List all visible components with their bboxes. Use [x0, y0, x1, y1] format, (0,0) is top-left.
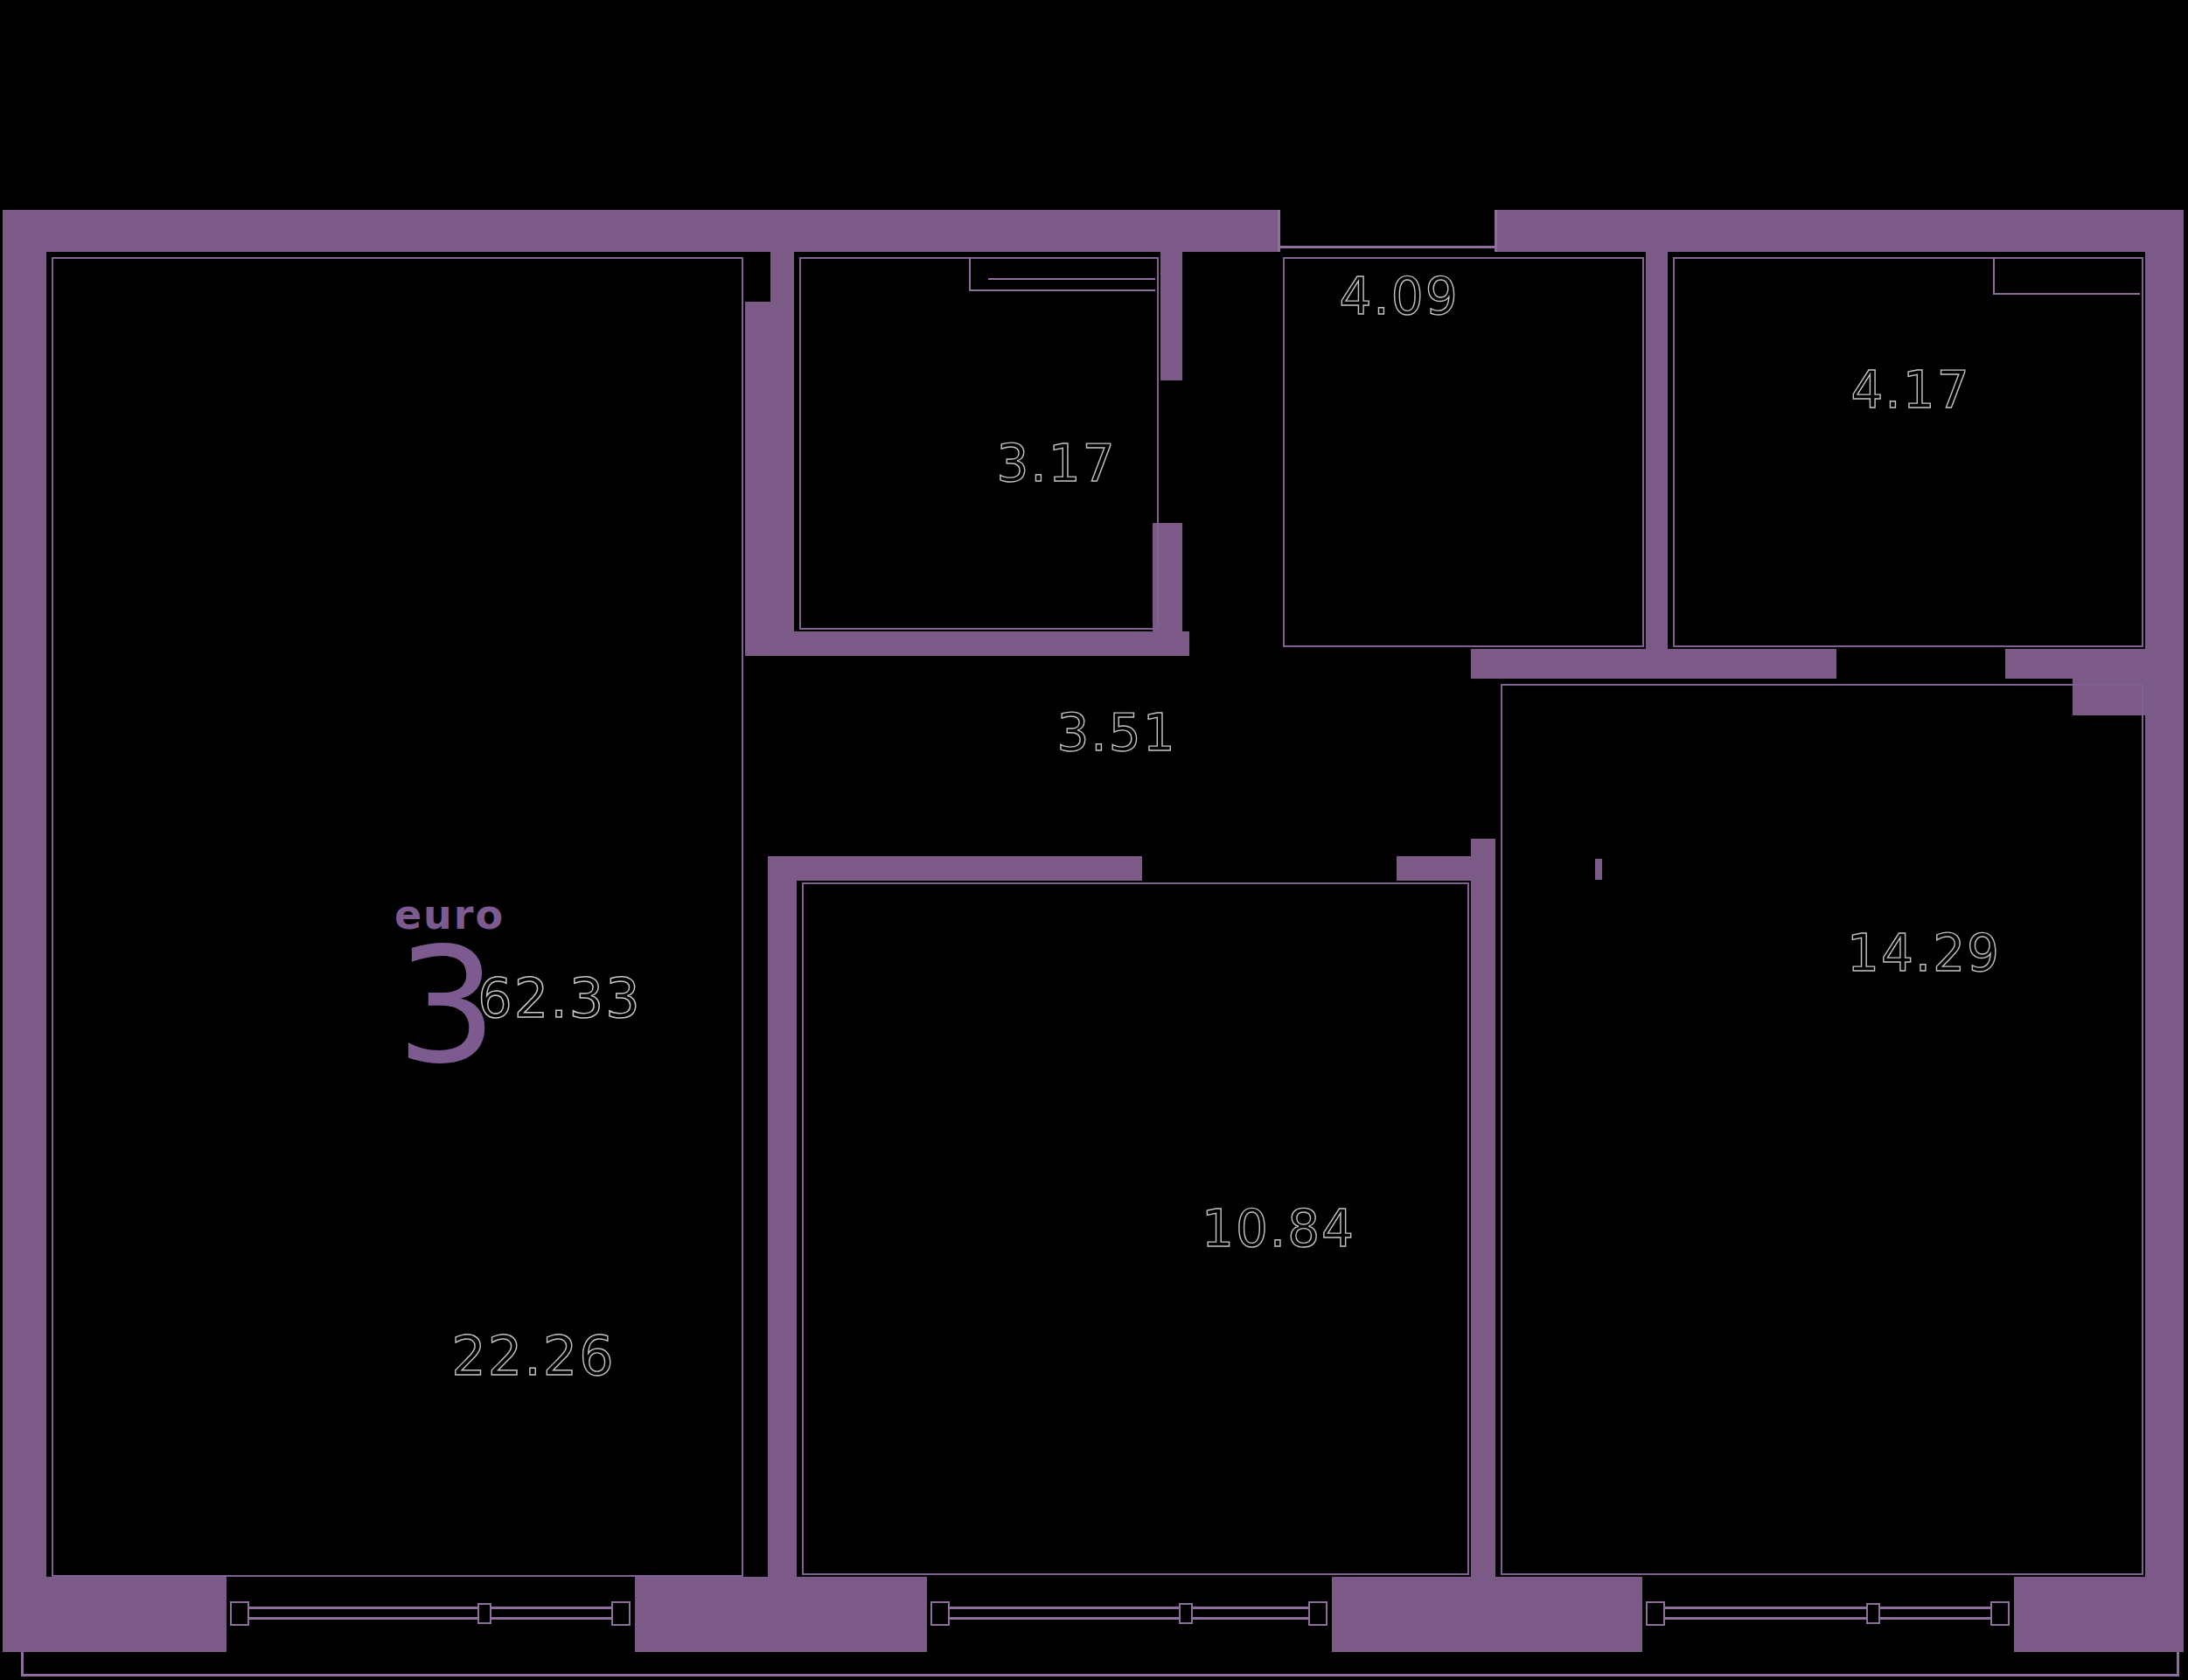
room-label-entry-hall: 4.09	[1339, 267, 1459, 326]
room-label-bedroom: 10.84	[1202, 1199, 1355, 1258]
wall-above-bedroom2-left	[1471, 649, 1836, 679]
wall-bedroom-divider	[1471, 839, 1495, 1577]
window-living-cap-left	[230, 1601, 249, 1626]
wall-hall-bathroom2-divider	[1646, 252, 1668, 649]
room-label-living: 22.26	[451, 1324, 616, 1388]
wall-top-left-segment	[3, 210, 1278, 252]
entrance-jamb-left	[1278, 210, 1280, 252]
balcony-line-left	[21, 1652, 24, 1677]
wall-living-bedroom-divider	[768, 856, 797, 1577]
duct-line-bath1-v	[969, 257, 971, 291]
wall-living-bathroom	[745, 252, 794, 656]
room-outline-bedroom	[802, 882, 1469, 1575]
room-outline-bedroom2	[1501, 684, 2143, 1575]
window-bedroom-cap-left	[930, 1601, 950, 1626]
room-label-bedroom2: 14.29	[1847, 924, 2001, 983]
wall-bottom-segment-2	[635, 1577, 927, 1652]
window-bedroom2-cap-right	[1990, 1601, 2010, 1626]
wall-left	[3, 252, 46, 1577]
entrance-threshold-line	[1278, 246, 1497, 248]
duct-line-bath2-v	[1993, 257, 1995, 295]
duct-line-bath2-h	[1993, 293, 2140, 295]
wall-hallway-bottom	[784, 856, 1142, 881]
window-bedroom-rail-top	[948, 1607, 1312, 1609]
window-bedroom-mullion	[1179, 1603, 1193, 1624]
window-living-mullion	[477, 1603, 491, 1624]
wall-bottom-segment-1	[3, 1577, 226, 1652]
window-bedroom2-rail-bottom	[1663, 1617, 1994, 1620]
wall-right	[2145, 252, 2184, 1577]
window-living-cap-right	[611, 1601, 631, 1626]
entrance-jamb-right	[1495, 210, 1497, 252]
window-bedroom-cap-right	[1308, 1601, 1327, 1626]
window-bedroom2-cap-left	[1646, 1601, 1665, 1626]
room-outline-entry-hall	[1283, 257, 1644, 647]
total-area-label: 62.33	[477, 966, 642, 1030]
duct-line-bath1-h1	[969, 289, 1155, 291]
wall-hallway-bottom-stub	[1397, 856, 1471, 881]
wall-bottom-segment-4	[2014, 1577, 2184, 1652]
room-label-bathroom: 3.17	[996, 434, 1116, 493]
window-bedroom2-rail-top	[1663, 1607, 1994, 1609]
wall-top-right-segment	[1497, 210, 2184, 252]
window-living-rail-bottom	[247, 1617, 615, 1620]
room-label-bathroom2: 4.17	[1850, 360, 1970, 420]
window-bedroom-rail-bottom	[948, 1617, 1312, 1620]
window-bedroom2-mullion	[1866, 1603, 1880, 1624]
wall-notch	[745, 252, 770, 302]
window-living-rail-top	[247, 1607, 615, 1609]
balcony-line-bottom	[21, 1674, 2179, 1677]
room-outline-bathroom2	[1673, 257, 2143, 647]
wall-bathroom-bottom	[768, 631, 1189, 656]
balcony-line-right	[2177, 1652, 2179, 1677]
duct-line-bath1-h2	[988, 278, 1155, 280]
wall-bathroom-right-upper	[1160, 252, 1182, 380]
room-label-hallway: 3.51	[1056, 703, 1176, 763]
wall-above-bedroom2-right	[2005, 649, 2145, 679]
wall-bottom-segment-3	[1332, 1577, 1642, 1652]
floor-plan: 22.26 3.17 4.09 4.17 3.51 10.84 14.29 eu…	[0, 0, 2188, 1680]
